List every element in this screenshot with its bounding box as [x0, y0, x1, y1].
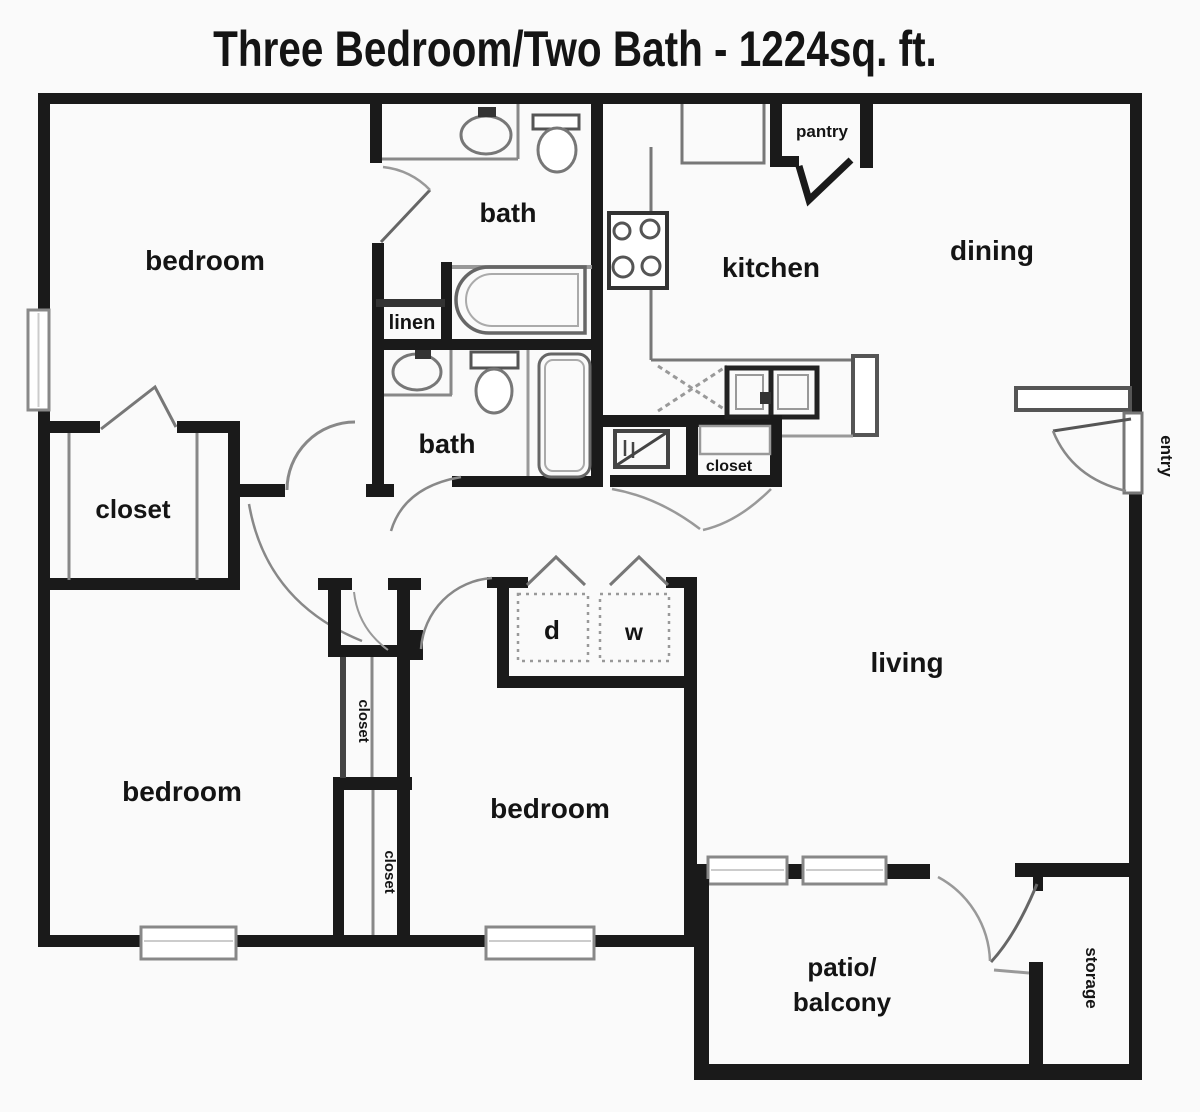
- svg-text:closet: closet: [355, 699, 372, 742]
- svg-text:living: living: [870, 647, 943, 678]
- svg-text:w: w: [624, 619, 643, 645]
- svg-text:pantry: pantry: [796, 122, 849, 141]
- svg-text:bath: bath: [480, 198, 537, 228]
- svg-text:patio/: patio/: [807, 952, 876, 982]
- svg-text:bath: bath: [419, 429, 476, 459]
- svg-text:balcony: balcony: [793, 987, 892, 1017]
- svg-text:bedroom: bedroom: [122, 776, 242, 807]
- svg-text:closet: closet: [381, 850, 398, 893]
- svg-text:bedroom: bedroom: [145, 245, 265, 276]
- svg-text:storage: storage: [1082, 947, 1101, 1008]
- svg-text:d: d: [544, 615, 560, 645]
- svg-text:entry: entry: [1157, 435, 1176, 477]
- svg-text:Three Bedroom/Two Bath - 1224s: Three Bedroom/Two Bath - 1224sq. ft.: [213, 21, 937, 77]
- svg-text:bedroom: bedroom: [490, 793, 610, 824]
- svg-text:kitchen: kitchen: [722, 252, 820, 283]
- svg-text:closet: closet: [706, 458, 753, 475]
- svg-text:dining: dining: [950, 235, 1034, 266]
- svg-text:closet: closet: [95, 494, 170, 524]
- svg-text:linen: linen: [389, 312, 436, 334]
